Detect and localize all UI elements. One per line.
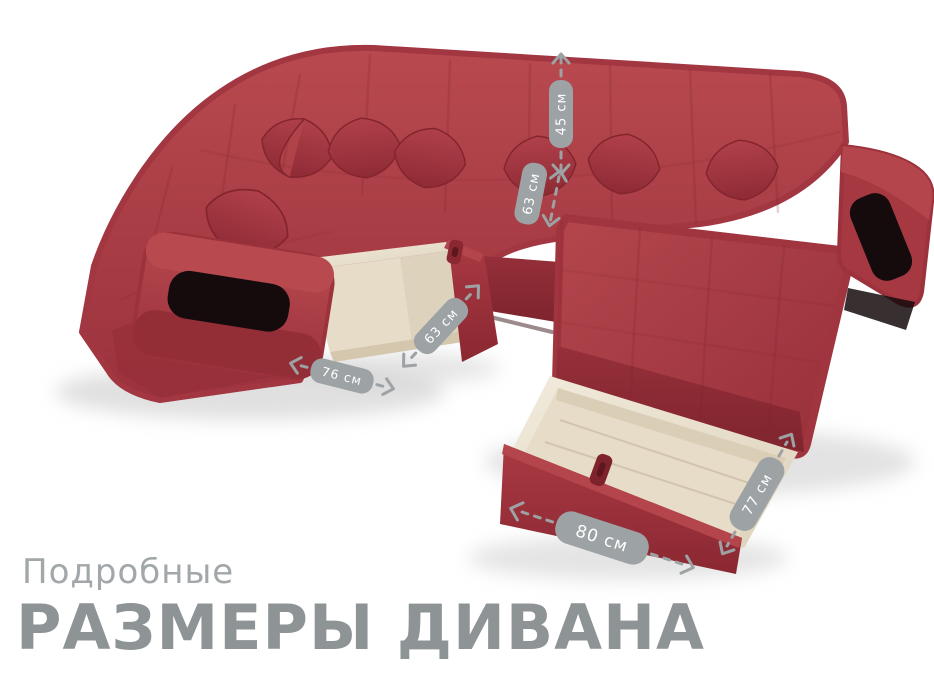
title-subtitle: Подробные	[22, 552, 705, 593]
left-armrest	[129, 230, 336, 382]
right-armrest	[839, 146, 933, 330]
dimension-label: 45 см	[555, 93, 570, 136]
product-dimensions-infographic: 45 см 63 см 63 см 76 см	[0, 0, 934, 700]
title-heading: РАЗМЕРЫ ДИВАНА	[16, 595, 705, 660]
title-block: Подробные РАЗМЕРЫ ДИВАНА	[16, 552, 705, 660]
